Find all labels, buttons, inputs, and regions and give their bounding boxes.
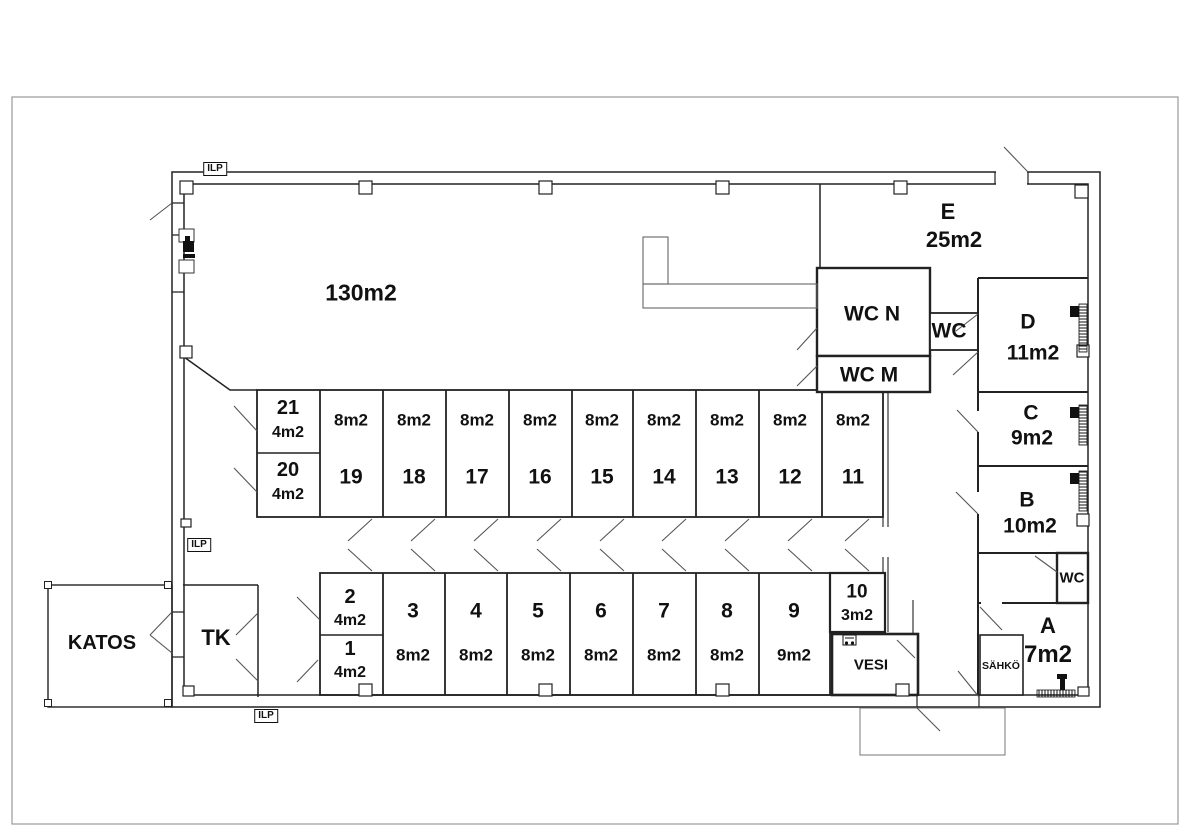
- unit-area: 3m2: [841, 608, 873, 624]
- unit-number: 8: [721, 601, 733, 622]
- unit-number: 15: [590, 467, 613, 488]
- wc-m-label: WC M: [840, 365, 898, 386]
- unit-number: 7: [658, 601, 670, 622]
- unit-area: 8m2: [836, 412, 870, 429]
- unit-area: 8m2: [521, 647, 555, 664]
- unit-area: 8m2: [710, 412, 744, 429]
- ilp-badge-bottom: ILP: [254, 709, 278, 723]
- room-b-area: 10m2: [1003, 516, 1057, 537]
- room-b-name: B: [1019, 490, 1034, 511]
- unit-number: 18: [402, 467, 425, 488]
- unit-number: 4: [470, 601, 482, 622]
- unit-number: 17: [465, 467, 488, 488]
- unit-area: 8m2: [523, 412, 557, 429]
- wc-small-label: WC: [1060, 571, 1085, 586]
- unit-area: 8m2: [460, 412, 494, 429]
- unit-area: 8m2: [584, 647, 618, 664]
- katos-label: KATOS: [68, 633, 136, 653]
- unit-number: 16: [528, 467, 551, 488]
- unit-number: 10: [846, 583, 867, 602]
- unit-number: 5: [532, 601, 544, 622]
- unit-area: 8m2: [334, 412, 368, 429]
- tk-label: TK: [201, 627, 230, 649]
- unit-area: 4m2: [334, 665, 366, 681]
- room-a-name: A: [1040, 615, 1056, 637]
- unit-area: 8m2: [710, 647, 744, 664]
- room-c-area: 9m2: [1011, 428, 1053, 449]
- room-d-area: 11m2: [1007, 343, 1060, 364]
- unit-area: 4m2: [272, 487, 304, 503]
- unit-number: 21: [277, 398, 299, 418]
- ilp-badge-top: ILP: [203, 162, 227, 176]
- unit-number: 14: [652, 467, 675, 488]
- unit-number: 2: [344, 587, 355, 607]
- unit-number: 6: [595, 601, 607, 622]
- room-e-area: 25m2: [926, 229, 982, 251]
- wc-n-label: WC N: [844, 304, 900, 325]
- unit-number: 13: [715, 467, 738, 488]
- ilp-badge-left: ILP: [187, 538, 211, 552]
- unit-number: 11: [842, 467, 864, 488]
- unit-number: 20: [277, 460, 299, 480]
- unit-area: 8m2: [396, 647, 430, 664]
- hall-area-label: 130m2: [325, 282, 397, 305]
- floor-plan: 130m2 E 25m2 WC N WC M WC D 11m2 C 9m2 B…: [0, 0, 1189, 840]
- exterior-stoop: [860, 708, 1005, 755]
- unit-area: 8m2: [773, 412, 807, 429]
- water-meter-icon: [843, 635, 856, 645]
- unit-area: 8m2: [459, 647, 493, 664]
- unit-area: 8m2: [397, 412, 431, 429]
- unit-area: 8m2: [647, 647, 681, 664]
- unit-area: 4m2: [334, 613, 366, 629]
- unit-number: 9: [788, 601, 800, 622]
- unit-area: 8m2: [647, 412, 681, 429]
- building-walls: [172, 172, 1100, 707]
- unit-area: 4m2: [272, 425, 304, 441]
- room-c-name: C: [1023, 403, 1038, 424]
- unit-number: 1: [344, 639, 355, 659]
- unit-area: 9m2: [777, 647, 811, 664]
- vesi-label: VESI: [854, 658, 888, 673]
- wc-mid-label: WC: [932, 321, 967, 342]
- sahko-label: SÄHKÖ: [982, 661, 1020, 672]
- unit-area: 8m2: [585, 412, 619, 429]
- room-d-name: D: [1020, 312, 1035, 333]
- unit-number: 12: [778, 467, 801, 488]
- room-a-area: 7m2: [1024, 643, 1072, 667]
- room-e-name: E: [941, 201, 956, 223]
- unit-number: 19: [339, 467, 362, 488]
- unit-number: 3: [407, 601, 419, 622]
